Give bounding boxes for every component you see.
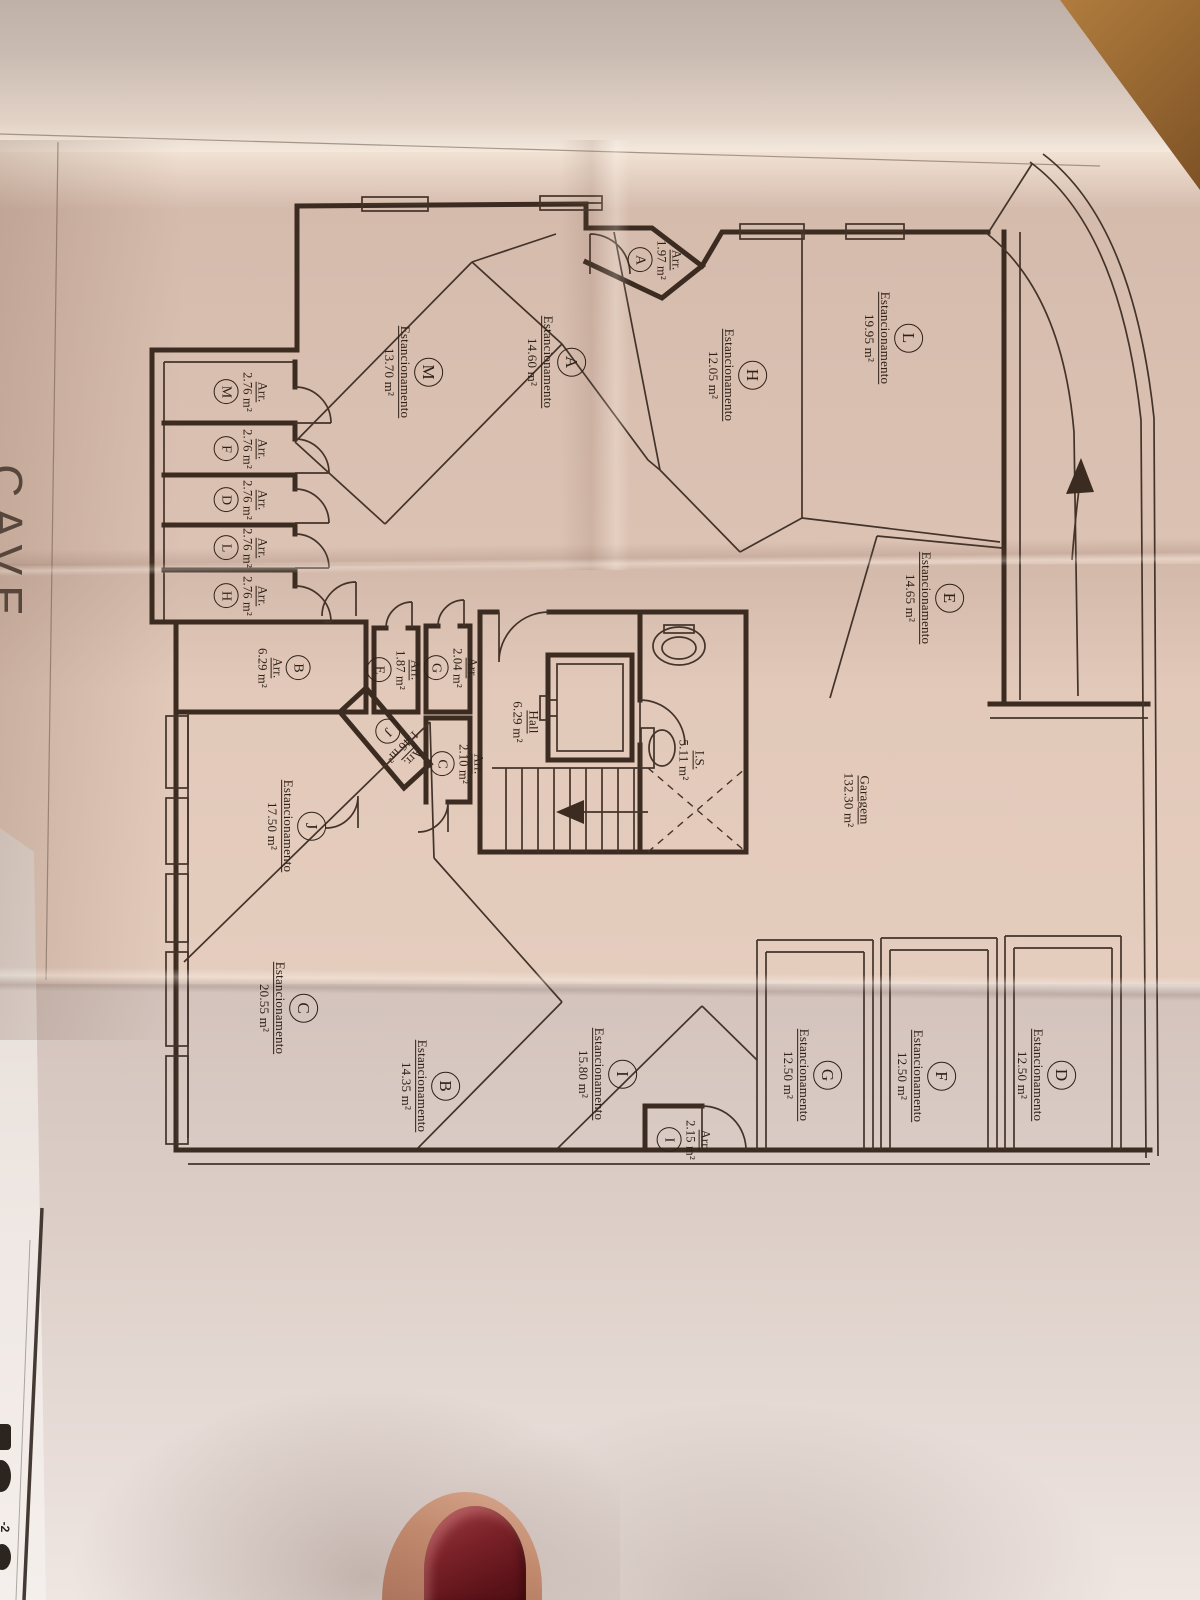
room-letter: H [738,361,767,390]
room-label-parking-F: F Estancionamento 12.50 m² [896,1030,956,1123]
room-label-storage-E: Arr. 1.87 m² E [366,650,421,690]
room-label-parking-D: D Estancionamento 12.50 m² [1016,1029,1076,1122]
room-label-storage-L: Arr. 2.76 m² L [213,528,268,568]
room-label-hall: Hall 6.29 m² [511,701,540,742]
room-letter: J [297,812,326,841]
door-arc [386,602,412,628]
room-letter: B [431,1072,460,1101]
room-label-parking-L: L Estancionamento 19.95 m² [863,292,923,385]
room-letter: M [414,358,443,387]
room-label-garagem: Garagem 132.30 m² [842,773,871,828]
floor-title: CAVE [0,464,33,626]
door-arc [326,796,358,828]
door-arc [499,612,549,662]
room-letter: F [213,437,238,462]
edge-text-fragment: -2 [0,1522,12,1533]
room-letter: M [213,380,238,405]
toilet-icon [649,730,675,766]
room-label-parking-C: C Estancionamento 20.55 m² [258,962,318,1055]
room-letter: F [927,1062,956,1091]
door-arc [295,387,331,622]
room-label-parking-J: J Estancionamento 17.50 m² [266,780,326,873]
room-label-storage-A: Arr. 1.97 m² A [627,240,682,280]
room-label-is: I.S. 5.11 m² [677,740,706,781]
ramp-edge [990,164,1032,230]
room-letter: E [366,658,391,683]
room-letter: B [286,656,311,681]
door-arc [438,600,464,626]
room-letter: L [213,536,238,561]
room-label-storage-H: Arr. 2.76 m² H [213,576,268,616]
photo-of-floor-plan: L Estancionamento 19.95 m² A Estancionam… [0,0,1200,1600]
ramp-outer-curve [1030,162,1146,1158]
room-letter: A [557,348,586,377]
ramp-outer-curve [1043,154,1158,1156]
room-letter: C [429,752,454,777]
door-arc [322,582,356,616]
room-letter: E [935,584,964,613]
room-letter: H [213,584,238,609]
room-label-storage-M: Arr. 2.76 m² M [213,372,268,412]
room-label-storage-G: Arr. 2.04 m² G [423,648,478,688]
ramp-arrow-head [1066,458,1094,494]
room-label-parking-G: G Estancionamento 12.50 m² [782,1029,842,1122]
elevator-car [557,664,623,751]
room-label-parking-A: A Estancionamento 14.60 m² [526,316,586,409]
room-label-storage-D: Arr. 2.76 m² D [213,480,268,520]
sheet-edge-line [24,1208,42,1600]
room-letter: D [1047,1061,1076,1090]
room-letter: A [627,248,652,273]
room-label-parking-E: E Estancionamento 14.65 m² [904,552,964,645]
room-letter: D [213,488,238,513]
room-label-storage-F: Arr. 2.76 m² F [213,429,268,469]
outer-wall [176,712,1150,1150]
ramp-curve [985,232,1078,696]
room-label-storage-B: B Arr. 6.29 m² [255,648,310,688]
room-letter: I [608,1060,637,1089]
room-label-storage-C: Arr. 2.10 m² C [429,744,484,784]
room-letter: C [289,994,318,1023]
room-letter: L [894,324,923,353]
outer-wall [702,232,988,266]
room-letter: G [423,656,448,681]
toilet-icon [641,728,654,768]
room-label-storage-I: Arr. 2.15 m² I [656,1120,711,1160]
stair-dashed [648,768,746,852]
room-letter: I [656,1128,681,1153]
elevator-door [540,696,557,720]
room-label-parking-B: B Estancionamento 14.35 m² [400,1040,460,1133]
elevator-shaft [548,655,632,760]
sink-icon [662,637,696,659]
room-label-parking-H: H Estancionamento 12.05 m² [707,329,767,422]
door-arc [640,700,685,745]
room-letter: G [813,1061,842,1090]
room-label-parking-I: I Estancionamento 15.80 m² [577,1028,637,1121]
window [166,716,188,1144]
room-label-parking-M: M Estancionamento 13.70 m² [383,326,443,419]
cutoff-print [0,1424,11,1450]
fold-crease-line [0,134,1100,166]
